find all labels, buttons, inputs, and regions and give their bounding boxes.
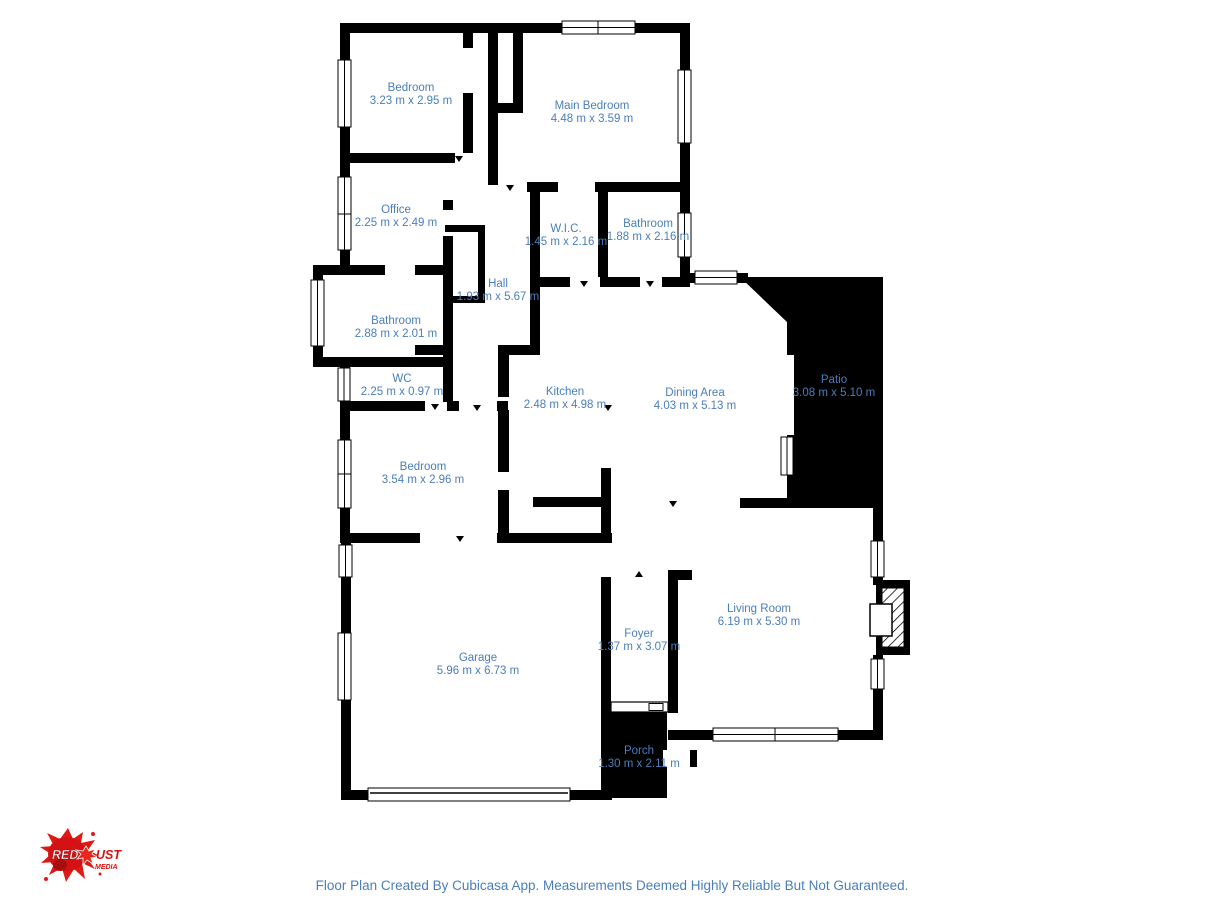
room-dims: 1.30 m x 2.11 m [598,758,680,771]
window [871,659,884,689]
room-name: Garage [437,652,519,665]
room-label-kitchen: Kitchen2.48 m x 4.98 m [524,386,606,411]
room-name: Patio [793,374,875,387]
room-label-living-room: Living Room6.19 m x 5.30 m [718,603,800,628]
footer-disclaimer: Floor Plan Created By Cubicasa App. Meas… [316,878,909,893]
room-name: Porch [598,745,680,758]
room-label-wc: WC2.25 m x 0.97 m [361,373,443,398]
window [338,368,350,401]
window [781,437,793,475]
room-label-bedroom-2: Bedroom3.54 m x 2.96 m [382,461,464,486]
window [339,545,352,577]
room-name: W.I.C. [525,223,607,236]
window [871,541,884,577]
fireplace [870,580,910,655]
floor-plan-page: Bedroom3.23 m x 2.95 m Main Bedroom4.48 … [0,0,1224,918]
room-label-porch: Porch1.30 m x 2.11 m [598,745,680,770]
room-dims: 4.03 m x 5.13 m [654,400,736,413]
entry-door [611,702,668,712]
room-name: Kitchen [524,386,606,399]
room-dims: 2.25 m x 0.97 m [361,386,443,399]
window [678,70,691,143]
room-dims: 6.19 m x 5.30 m [718,616,800,629]
room-dims: 2.88 m x 2.01 m [355,328,437,341]
room-name: Bathroom [355,315,437,328]
room-dims: 2.48 m x 4.98 m [524,399,606,412]
room-label-bedroom: Bedroom3.23 m x 2.95 m [370,82,452,107]
window [338,177,351,250]
room-name: Dining Area [654,387,736,400]
logo-text-red: RED [52,848,78,862]
logo-text-media: MEDIA [95,864,118,871]
room-dims: 4.48 m x 3.59 m [551,113,633,126]
room-label-bathroom-lower: Bathroom2.88 m x 2.01 m [355,315,437,340]
room-name: Bedroom [382,461,464,474]
room-label-garage: Garage5.96 m x 6.73 m [437,652,519,677]
red-dust-media-logo: RED UST MEDIA [38,824,133,886]
room-label-dining-area: Dining Area4.03 m x 5.13 m [654,387,736,412]
room-label-foyer: Foyer1.37 m x 3.07 m [598,628,680,653]
room-name: Main Bedroom [551,100,633,113]
room-name: WC [361,373,443,386]
room-label-office: Office2.25 m x 2.49 m [355,204,437,229]
window [695,271,737,284]
room-dims: 1.45 m x 2.16 m [525,236,607,249]
logo-text-dust: UST [96,848,122,862]
window [338,60,351,127]
room-dims: 1.37 m x 3.07 m [598,641,680,654]
floor-plan-drawing [0,0,1224,918]
room-label-hall: Hall1.93 m x 5.67 m [457,278,539,303]
window [562,21,635,34]
room-dims: 1.88 m x 2.16 m [607,231,689,244]
room-name: Bedroom [370,82,452,95]
room-dims: 5.96 m x 6.73 m [437,665,519,678]
room-name: Office [355,204,437,217]
room-name: Hall [457,278,539,291]
room-label-main-bedroom: Main Bedroom4.48 m x 3.59 m [551,100,633,125]
window [338,633,351,700]
room-dims: 1.93 m x 5.67 m [457,291,539,304]
room-label-wic: W.I.C.1.45 m x 2.16 m [525,223,607,248]
room-name: Bathroom [607,218,689,231]
room-dims: 3.54 m x 2.96 m [382,474,464,487]
room-name: Living Room [718,603,800,616]
window [338,440,351,508]
room-dims: 3.23 m x 2.95 m [370,95,452,108]
window [713,728,838,741]
room-label-patio: Patio3.08 m x 5.10 m [793,374,875,399]
room-label-bathroom-upper: Bathroom1.88 m x 2.16 m [607,218,689,243]
room-dims: 2.25 m x 2.49 m [355,217,437,230]
garage-door [368,788,570,801]
room-dims: 3.08 m x 5.10 m [793,387,875,400]
window [311,280,324,346]
room-name: Foyer [598,628,680,641]
